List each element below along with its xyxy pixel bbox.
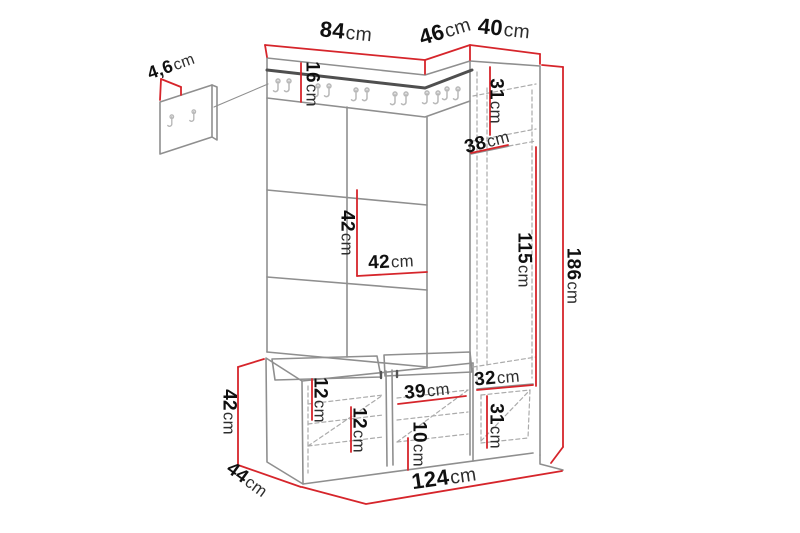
dim-label-cabinet-width: 40cm (477, 15, 532, 43)
dimension-diagram: 84cm 46cm 40cm 4,6cm 16cm 31cm 38cm 42cm… (0, 0, 800, 533)
dim-label-cabinet-bottom-height: 31cm (487, 403, 506, 449)
cabinet-top-edge (470, 61, 540, 66)
top-width-line (265, 45, 540, 60)
dim-label-bench-gap-bottom: 10cm (410, 421, 429, 467)
dim-label-bench-gap-mid: 12cm (350, 407, 369, 453)
dim-label-tile-height: 42cm (338, 210, 357, 256)
wall-panel-outline (160, 85, 212, 154)
dim-label-total-height: 186cm (564, 248, 583, 304)
hook-icon (423, 91, 441, 104)
dim-label-cabinet-mid-height: 115cm (515, 232, 534, 287)
dim-label-cabinet-top-height: 31cm (487, 78, 506, 124)
hook-icon (352, 88, 370, 101)
hook-icon (274, 79, 292, 92)
top-board-edge (267, 70, 472, 88)
hook-icon (391, 92, 409, 105)
dim-label-top-rail-height: 16cm (303, 61, 322, 107)
dim-label-panel-width: 84cm (319, 18, 373, 45)
tile-width-line (357, 272, 427, 276)
dim-label-bench-gap-top: 12cm (311, 377, 330, 423)
dim-label-tile-width: 42cm (368, 251, 415, 272)
dim-label-cabinet-bottom-width: 32cm (473, 367, 520, 390)
dim-label-bench-height: 42cm (220, 389, 239, 435)
hook-icon (168, 115, 174, 126)
hook-icon (190, 110, 196, 121)
bench-left-side (266, 358, 303, 484)
pointer-line (214, 84, 268, 107)
hook-icon (443, 87, 461, 100)
panel-thickness-line (161, 79, 181, 87)
